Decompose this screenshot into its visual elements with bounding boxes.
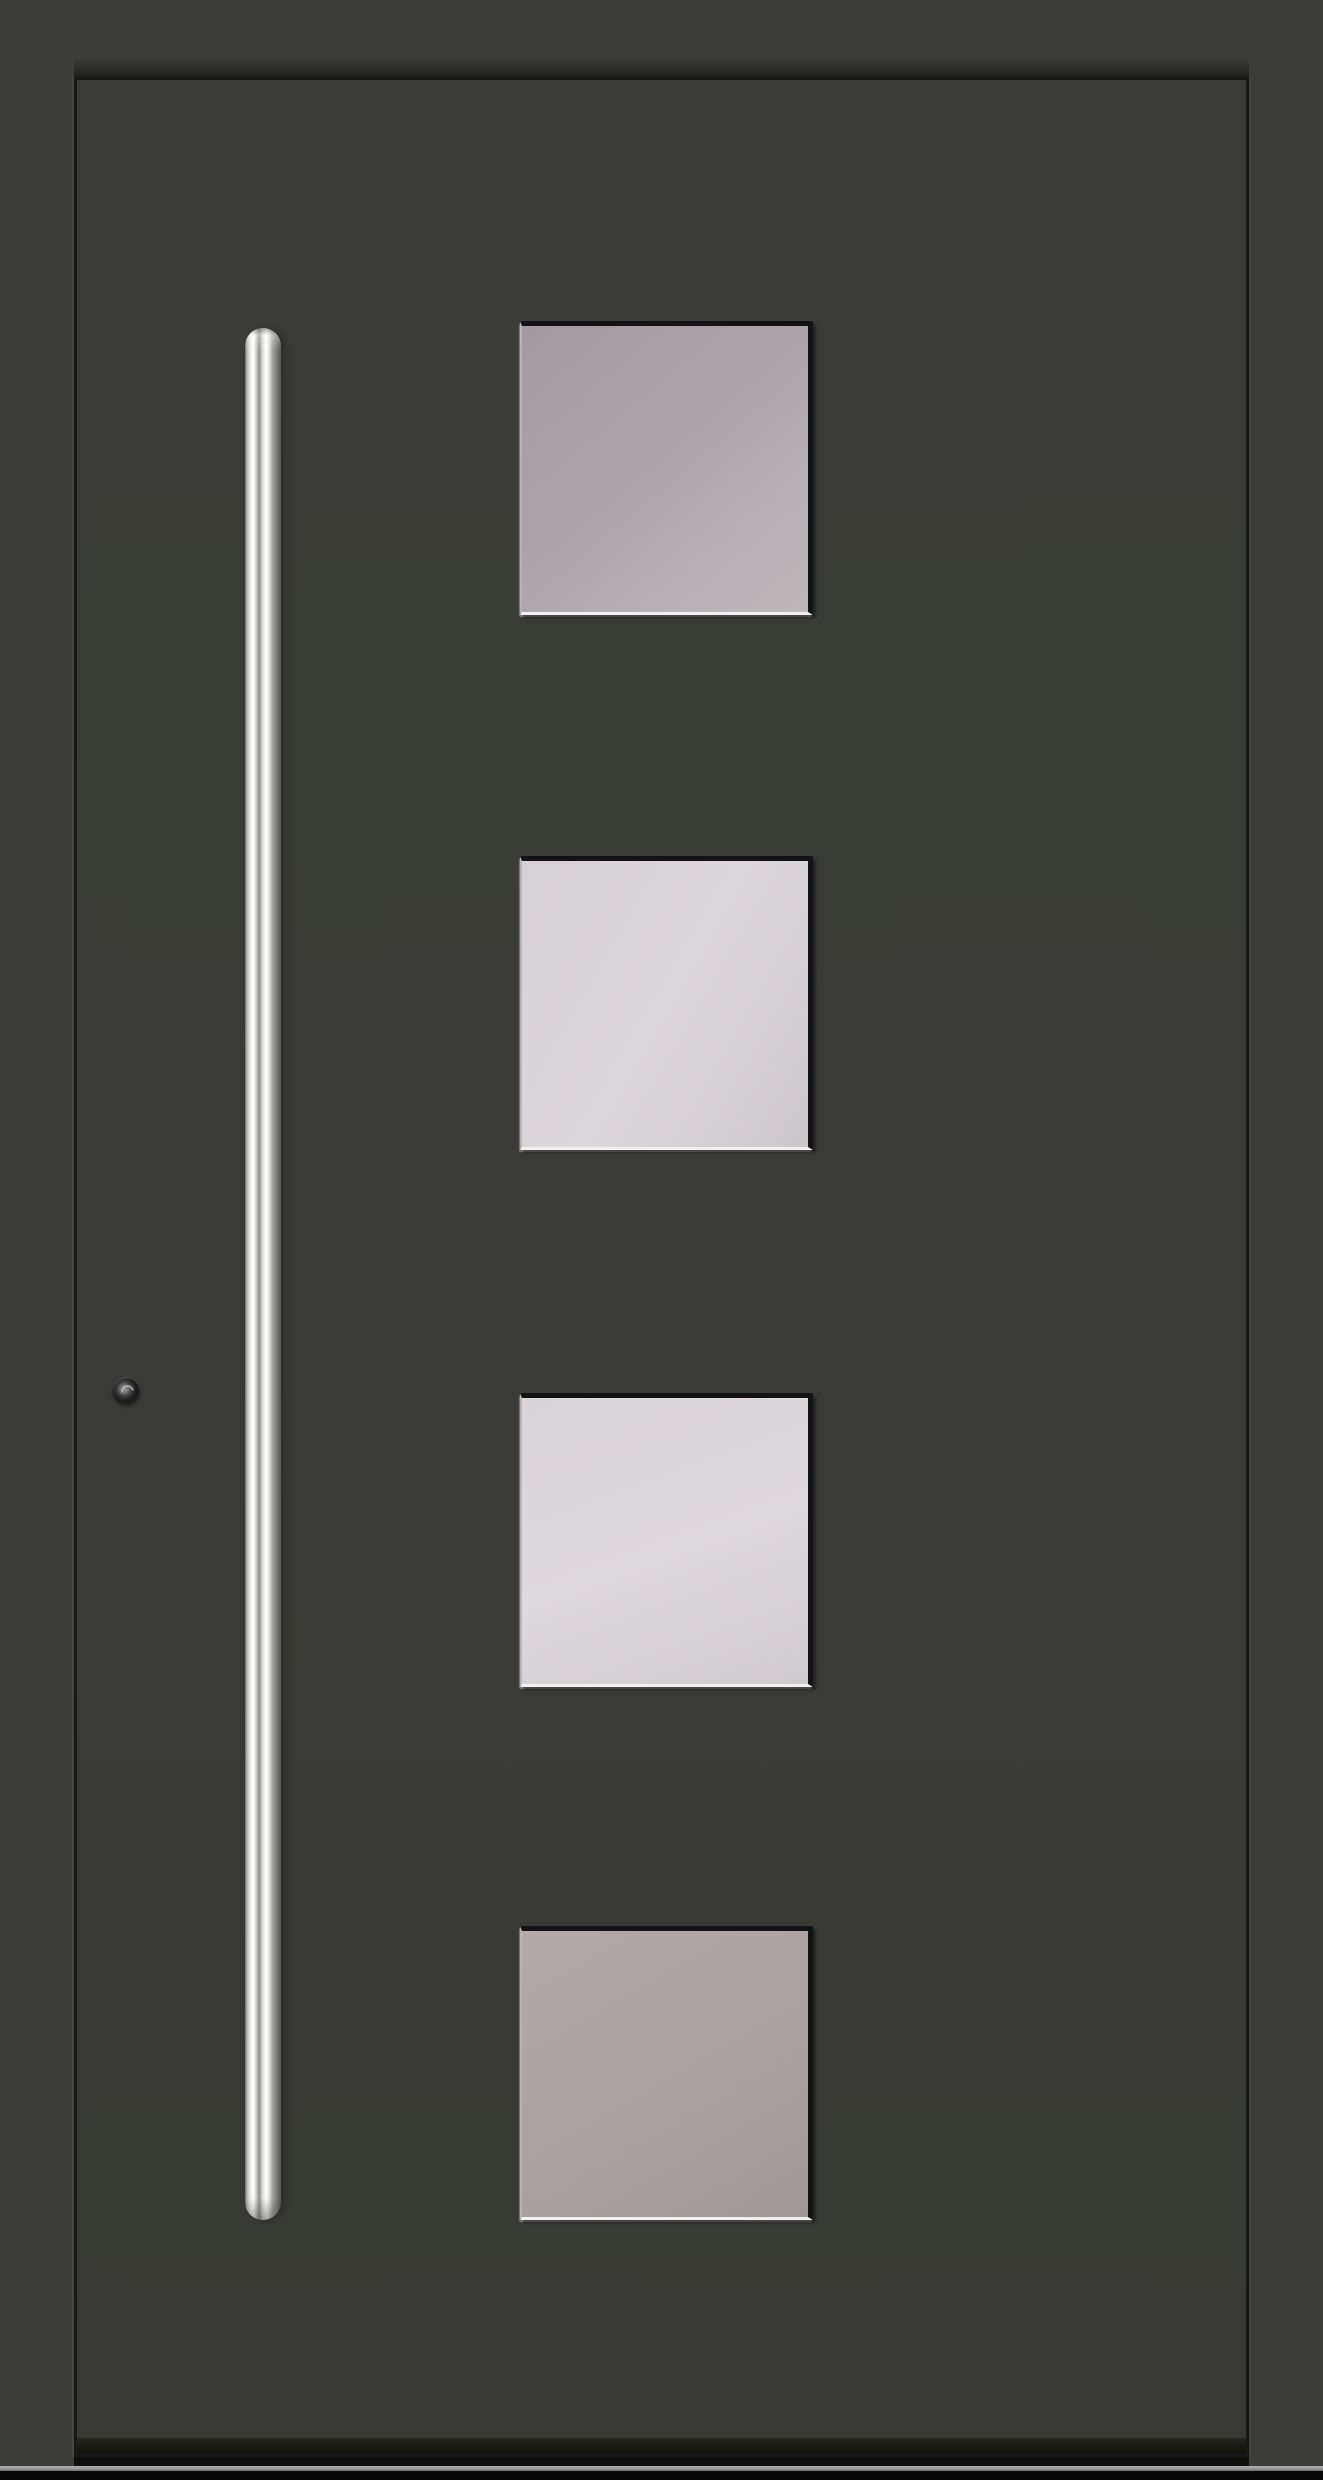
pull-handle-bar	[245, 328, 281, 2220]
lock-cylinder-icon	[113, 1377, 140, 1404]
under-door-shadow	[74, 2457, 1249, 2466]
entrance-door-photo	[0, 0, 1323, 2480]
floor-shadow	[0, 2471, 1323, 2480]
door-leaf	[74, 77, 1249, 2457]
glass-panel-2	[520, 856, 813, 1150]
glass-panel-4	[520, 1926, 813, 2220]
glass-panel-3	[520, 1393, 813, 1687]
glass-panel-1	[520, 321, 813, 615]
frame-top-shadow	[74, 58, 1249, 79]
door-kick-band	[77, 2438, 1246, 2454]
